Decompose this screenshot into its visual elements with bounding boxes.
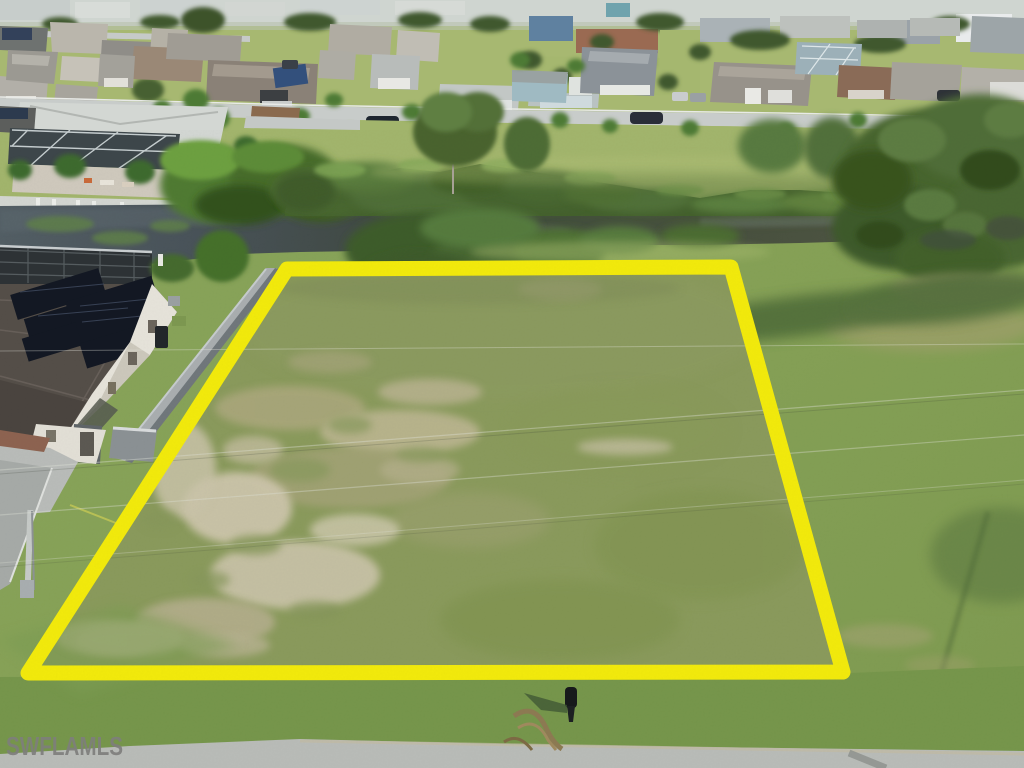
svg-text:SWFLAMLS: SWFLAMLS <box>6 731 123 761</box>
